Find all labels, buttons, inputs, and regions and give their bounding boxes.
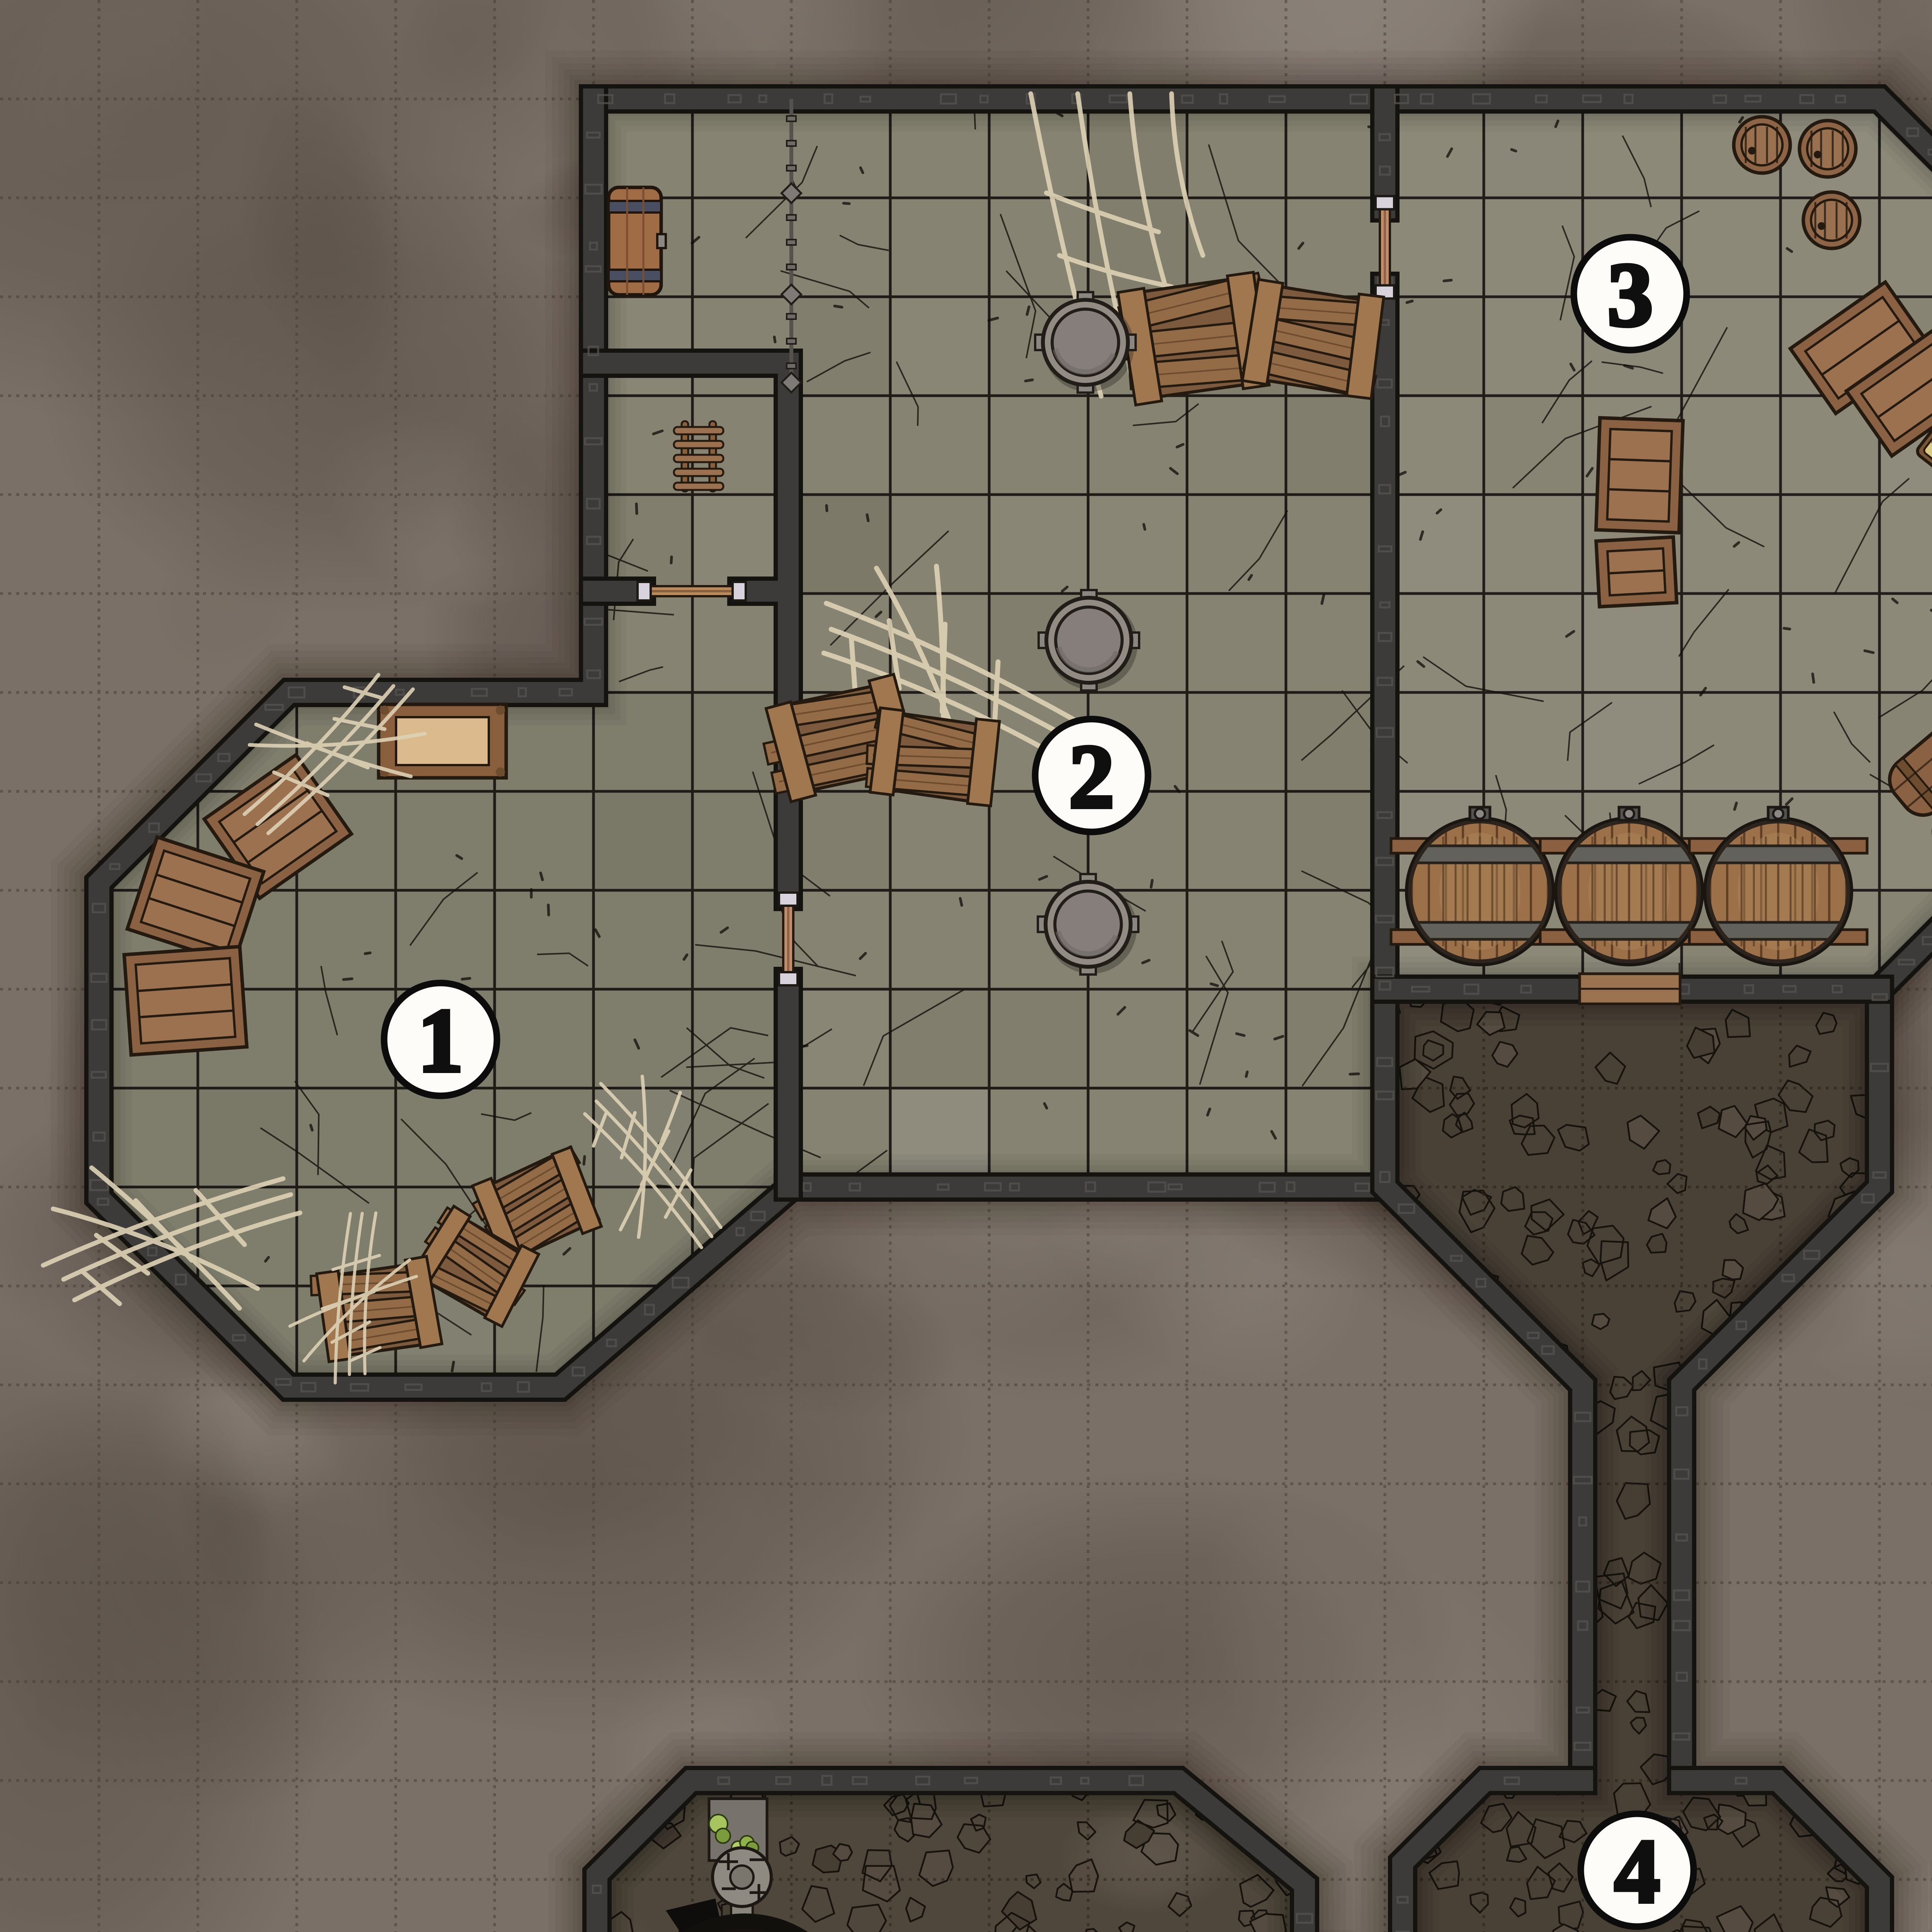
- svg-text:3: 3: [1607, 245, 1653, 345]
- svg-text:2: 2: [1069, 726, 1114, 827]
- svg-text:4: 4: [1614, 1821, 1660, 1922]
- svg-text:1: 1: [418, 990, 463, 1091]
